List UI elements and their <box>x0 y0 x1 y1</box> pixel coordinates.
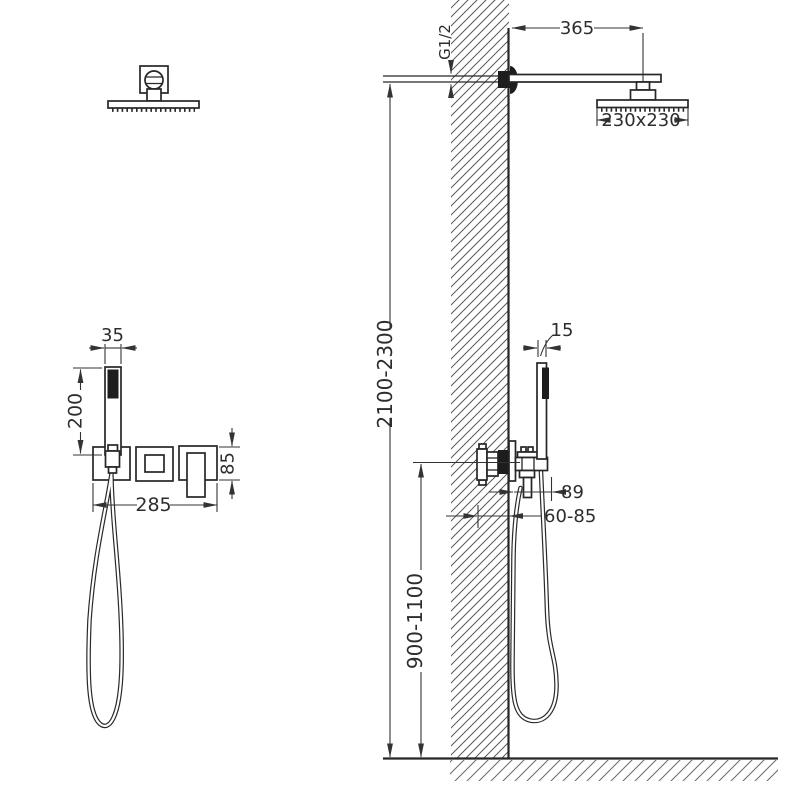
head-neck <box>147 89 161 101</box>
embedded-valve-body <box>477 449 487 480</box>
dim-handshower-width-label: 35 <box>101 325 124 346</box>
shower-arm <box>509 75 661 83</box>
dim-thread-label: G1/2 <box>436 24 454 60</box>
hose-nut-body <box>106 451 120 467</box>
diverter-knob <box>145 455 164 472</box>
dimension-annotations: 365 230x230 G1/2 2100-2300 900-1100 35 2 <box>65 18 689 757</box>
hand-shower-face-front <box>108 370 119 399</box>
wall-hatch <box>451 0 509 758</box>
floor-section <box>383 759 778 782</box>
technical-drawing: 365 230x230 G1/2 2100-2300 900-1100 35 2 <box>0 0 800 800</box>
dim-trim-width-label: 285 <box>135 494 171 516</box>
hand-shower-face-side <box>542 368 549 400</box>
valve-outlet-nut <box>520 471 535 478</box>
dim-head-size-label: 230x230 <box>601 110 680 131</box>
mixer-lever-side <box>524 478 532 498</box>
mixer-lever-front <box>187 453 205 497</box>
shower-head-side <box>597 100 688 108</box>
ball-joint <box>145 71 163 89</box>
rain-shower-front-view <box>108 66 199 110</box>
arm-joint-upper <box>637 82 650 90</box>
dim-projection-label: 89 <box>561 482 584 503</box>
hose-nut-tip <box>109 467 117 473</box>
dim-valve-height-label: 900-1100 <box>403 573 427 669</box>
shower-head-front <box>108 101 199 108</box>
arm-joint-lower <box>631 90 656 100</box>
dim-embed-depth-label: 60-85 <box>544 506 596 527</box>
wall-section <box>451 0 509 758</box>
dim-install-height-label: 2100-2300 <box>373 319 397 428</box>
dim-arm-length-label: 365 <box>560 18 594 39</box>
dim-handshower-length-label: 200 <box>65 393 87 429</box>
rain-shower-side-view <box>509 75 688 111</box>
dim-handshower-depth-label: 15 <box>551 320 574 341</box>
embedded-valve-mid <box>487 452 498 476</box>
dim-plate-height-label: 85 <box>218 452 239 475</box>
floor-hatch <box>450 760 778 781</box>
hose-nut-top <box>108 445 118 451</box>
mixer-front-view <box>89 367 217 726</box>
valve-wall-plate-side <box>509 441 516 481</box>
